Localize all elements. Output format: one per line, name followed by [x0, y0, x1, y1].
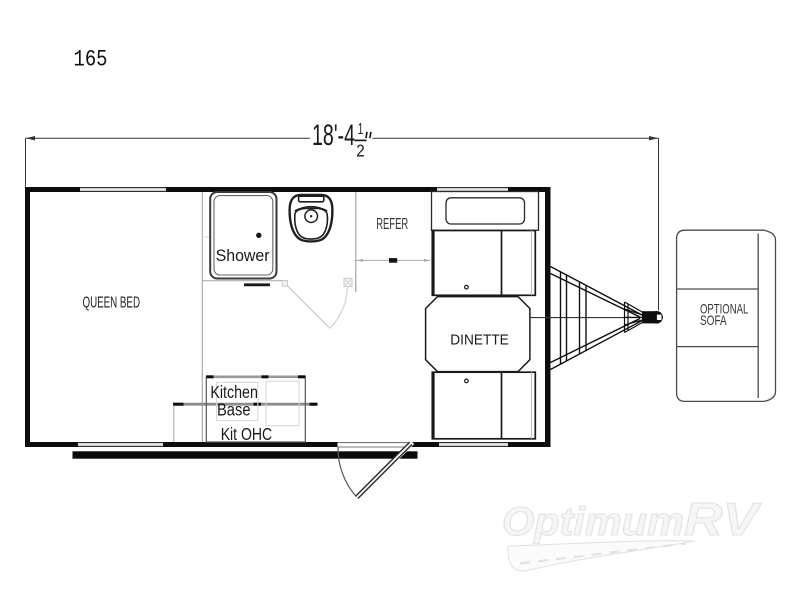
svg-text:SOFA: SOFA — [700, 312, 727, 328]
svg-text:Kit OHC: Kit OHC — [221, 424, 273, 444]
svg-text:RV: RV — [684, 493, 762, 545]
svg-text:Shower: Shower — [216, 246, 270, 265]
svg-text:Base: Base — [217, 400, 251, 420]
svg-text:REFER: REFER — [376, 216, 408, 233]
svg-text:QUEEN BED: QUEEN BED — [83, 295, 141, 312]
svg-text:DINETTE: DINETTE — [450, 333, 509, 349]
svg-text:18'-4: 18'-4 — [312, 119, 355, 152]
svg-text:Optimum: Optimum — [502, 500, 684, 544]
svg-text:165: 165 — [74, 47, 108, 73]
svg-text:2: 2 — [356, 140, 365, 160]
svg-text:1: 1 — [358, 121, 364, 138]
